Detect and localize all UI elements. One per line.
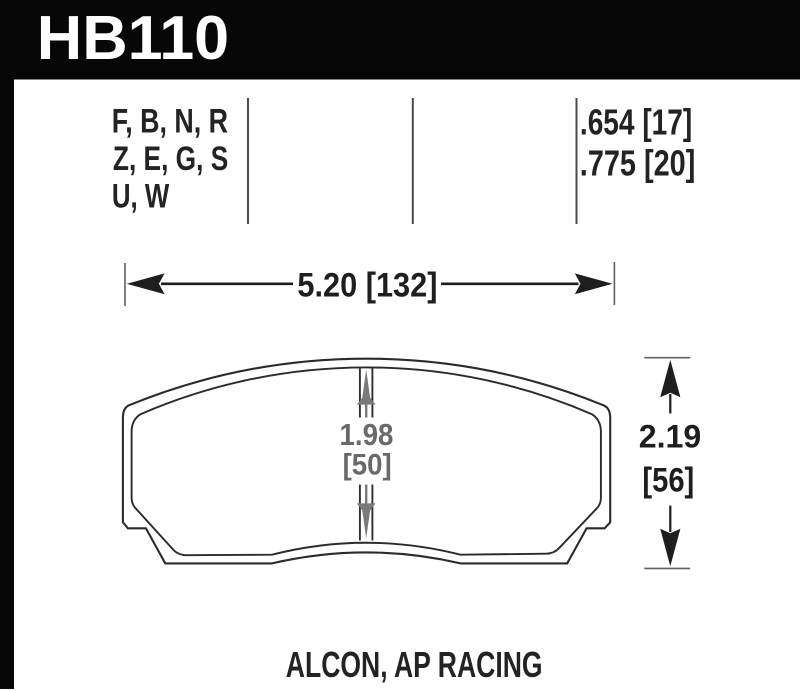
- svg-text:[56]: [56]: [642, 460, 694, 499]
- svg-text:5.20 [132]: 5.20 [132]: [297, 265, 437, 304]
- svg-text:U, W: U, W: [112, 178, 170, 215]
- svg-text:F, B, N, R: F, B, N, R: [112, 103, 228, 141]
- svg-text:.775 [20]: .775 [20]: [580, 142, 696, 183]
- svg-text:ALCON, AP RACING: ALCON, AP RACING: [286, 644, 543, 685]
- svg-text:[50]: [50]: [343, 448, 392, 481]
- svg-text:Z, E, G, S: Z, E, G, S: [113, 140, 228, 178]
- svg-text:.654 [17]: .654 [17]: [580, 102, 692, 142]
- svg-text:HB110: HB110: [37, 3, 229, 72]
- svg-text:1.98: 1.98: [340, 418, 394, 453]
- svg-text:2.19: 2.19: [639, 418, 702, 454]
